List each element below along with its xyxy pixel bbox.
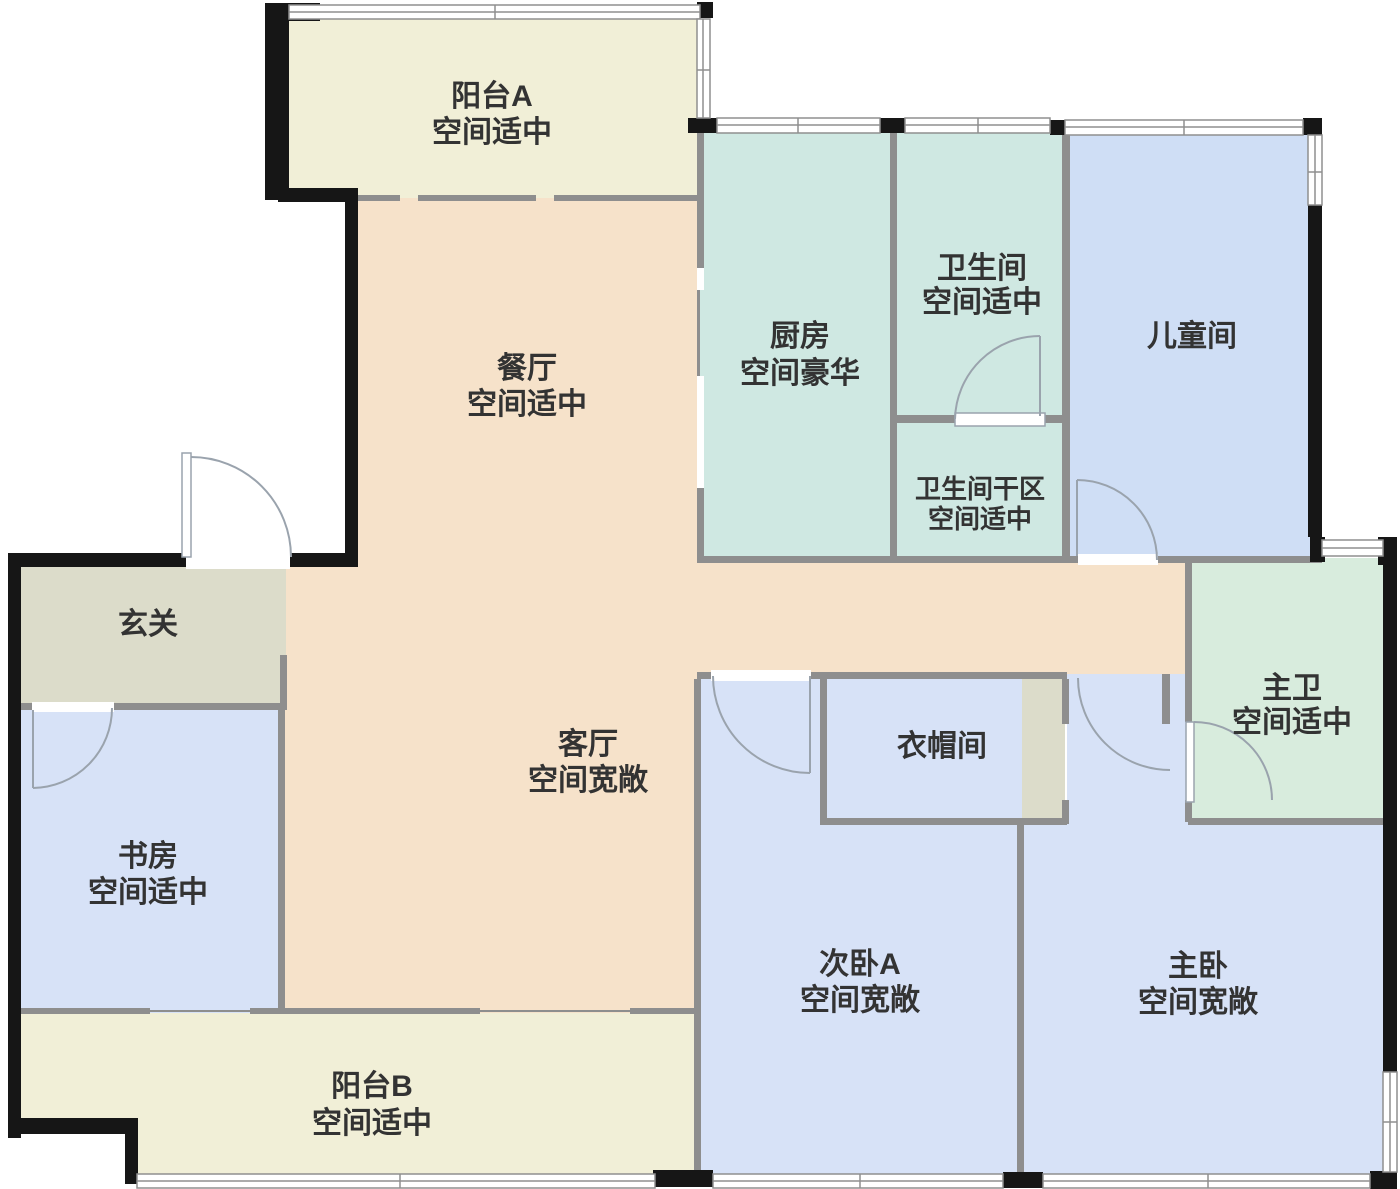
label-bathroom-dry-name: 卫生间干区 bbox=[915, 474, 1045, 504]
wall-kids-left bbox=[1062, 130, 1070, 562]
window-balcony-a-right bbox=[697, 19, 710, 118]
window-kids-top bbox=[1065, 120, 1303, 135]
door-arc-entry bbox=[191, 457, 291, 557]
label-cloakroom-name: 衣帽间 bbox=[897, 730, 987, 763]
label-master-bath-note: 空间适中 bbox=[1232, 706, 1352, 739]
door-gap-entry bbox=[186, 551, 290, 569]
door-gap-bedroom-a bbox=[711, 670, 811, 681]
label-master-bath-name: 主卫 bbox=[1262, 672, 1322, 705]
wall-kitchen-left-top bbox=[697, 130, 704, 268]
wall-cloakroom-bottom bbox=[820, 818, 1067, 825]
window-master-bedroom-right bbox=[1383, 1072, 1397, 1172]
door-threshold-bathroom bbox=[955, 413, 1045, 426]
label-bedroom-a-note: 空间宽敞 bbox=[800, 983, 921, 1017]
wall-balcony-a-bottom-1 bbox=[357, 195, 400, 201]
wall-master-bath-left-bottom bbox=[1185, 800, 1192, 822]
wall-corridor-top-right bbox=[1158, 556, 1322, 563]
post-bottom-bedroom-divider bbox=[1003, 1172, 1043, 1188]
wall-corridor-bottom-cap2 bbox=[810, 672, 823, 679]
label-living-note: 空间宽敞 bbox=[528, 763, 649, 797]
wall-entry-top-left bbox=[8, 553, 186, 567]
wall-bottom-left-step-h bbox=[8, 1118, 138, 1134]
wall-entry-right-stub bbox=[280, 655, 287, 710]
label-dining-note: 空间适中 bbox=[467, 388, 587, 421]
wall-right-exterior bbox=[1383, 560, 1397, 1072]
wall-study-right bbox=[278, 710, 285, 1013]
label-bathroom-dry-note: 空间适中 bbox=[928, 504, 1032, 534]
window-master-bedroom-bottom bbox=[1043, 1174, 1370, 1188]
wall-kitchen-bath-divider bbox=[890, 130, 897, 562]
label-balcony-a-note: 空间适中 bbox=[432, 116, 552, 149]
post-kitchen-top-left bbox=[688, 118, 718, 133]
wall-cloakroom-left bbox=[820, 679, 827, 824]
wall-cloakroom-top bbox=[823, 672, 1067, 679]
window-balcony-a-top bbox=[289, 5, 700, 19]
wall-entry-top-right bbox=[290, 553, 358, 567]
label-kitchen-note: 空间豪华 bbox=[740, 356, 860, 390]
window-bathroom-top bbox=[905, 118, 1050, 133]
wall-balcony-b-slide-2 bbox=[480, 1010, 630, 1012]
wall-kitchen-left-bottom bbox=[697, 488, 704, 562]
door-gap-study bbox=[32, 702, 114, 712]
wall-master-bath-bottom bbox=[1188, 818, 1390, 825]
door-leaf-master-bath bbox=[1186, 722, 1194, 802]
door-gap-kitchen-top bbox=[697, 268, 704, 290]
post-bottom-bedroom-a-left bbox=[653, 1170, 713, 1187]
post-kids-top-right bbox=[1303, 118, 1322, 135]
label-living-name: 客厅 bbox=[558, 727, 618, 761]
wall-corridor-top-left bbox=[697, 556, 1078, 563]
label-balcony-b-note: 空间适中 bbox=[312, 1107, 432, 1140]
label-balcony-b-name: 阳台B bbox=[331, 1069, 413, 1103]
label-bathroom-note: 空间适中 bbox=[922, 286, 1042, 319]
wall-kids-right bbox=[1308, 205, 1322, 537]
label-master-bedroom-name: 主卧 bbox=[1168, 950, 1228, 983]
label-dining-name: 餐厅 bbox=[497, 352, 557, 385]
post-bath-kids-top bbox=[1050, 120, 1065, 135]
post-bottom-right-corner bbox=[1370, 1171, 1397, 1189]
wall-balcony-b-slide-1 bbox=[150, 1010, 250, 1012]
wall-master-door-stub bbox=[1162, 674, 1170, 724]
wall-bedroom-a-left bbox=[694, 679, 701, 1174]
wall-balcony-a-bottom-2 bbox=[418, 195, 536, 201]
door-gap-kitchen-bottom bbox=[697, 376, 704, 488]
wall-cloakroom-right-top bbox=[1062, 679, 1069, 724]
wall-kitchen-sliding-panel bbox=[697, 290, 700, 376]
wall-bottom-left-step-v bbox=[125, 1118, 138, 1184]
window-kitchen-top bbox=[717, 118, 880, 133]
label-entry-name: 玄关 bbox=[118, 607, 178, 641]
wall-bath-bottom-left bbox=[890, 415, 957, 423]
label-balcony-a-name: 阳台A bbox=[451, 79, 533, 113]
wall-corridor-bottom-cap bbox=[697, 672, 713, 679]
floor-plan-canvas: 阳台A 空间适中 餐厅 空间适中 厨房 空间豪华 卫生间 空间适中 儿童间 卫生… bbox=[0, 0, 1400, 1189]
wall-balcony-a-bottom-3 bbox=[554, 195, 697, 201]
wall-balcony-b-top-1 bbox=[14, 1008, 150, 1014]
wall-left-exterior bbox=[8, 553, 21, 1138]
label-study-note: 空间适中 bbox=[88, 876, 208, 909]
wall-bedroom-divider bbox=[1017, 824, 1024, 1176]
label-bedroom-a-name: 次卧A bbox=[819, 948, 901, 981]
label-kitchen-name: 厨房 bbox=[770, 320, 830, 353]
label-study-name: 书房 bbox=[118, 840, 178, 873]
wall-balcony-b-top-2 bbox=[250, 1008, 480, 1014]
window-kids-right bbox=[1308, 135, 1322, 205]
floor-plan-svg: 阳台A 空间适中 餐厅 空间适中 厨房 空间豪华 卫生间 空间适中 儿童间 卫生… bbox=[0, 0, 1400, 1189]
label-kids-room-name: 儿童间 bbox=[1147, 319, 1237, 353]
window-master-bath-top bbox=[1322, 540, 1383, 556]
door-leaf-entry bbox=[182, 453, 191, 557]
label-master-bedroom-note: 空间宽敞 bbox=[1138, 985, 1259, 1019]
label-bathroom-name: 卫生间 bbox=[937, 252, 1027, 285]
window-bedroom-a-bottom bbox=[713, 1174, 1003, 1188]
door-gap-kids bbox=[1078, 554, 1158, 565]
wall-balcony-b-top-3 bbox=[630, 1008, 697, 1014]
wall-entry-bottom bbox=[112, 703, 286, 710]
wall-dining-left bbox=[345, 195, 358, 567]
window-balcony-b-bottom bbox=[137, 1174, 655, 1188]
post-kitchen-bath-top bbox=[880, 118, 905, 133]
wall-balcony-a-left bbox=[265, 3, 289, 200]
wall-master-bath-left-top bbox=[1185, 560, 1192, 722]
